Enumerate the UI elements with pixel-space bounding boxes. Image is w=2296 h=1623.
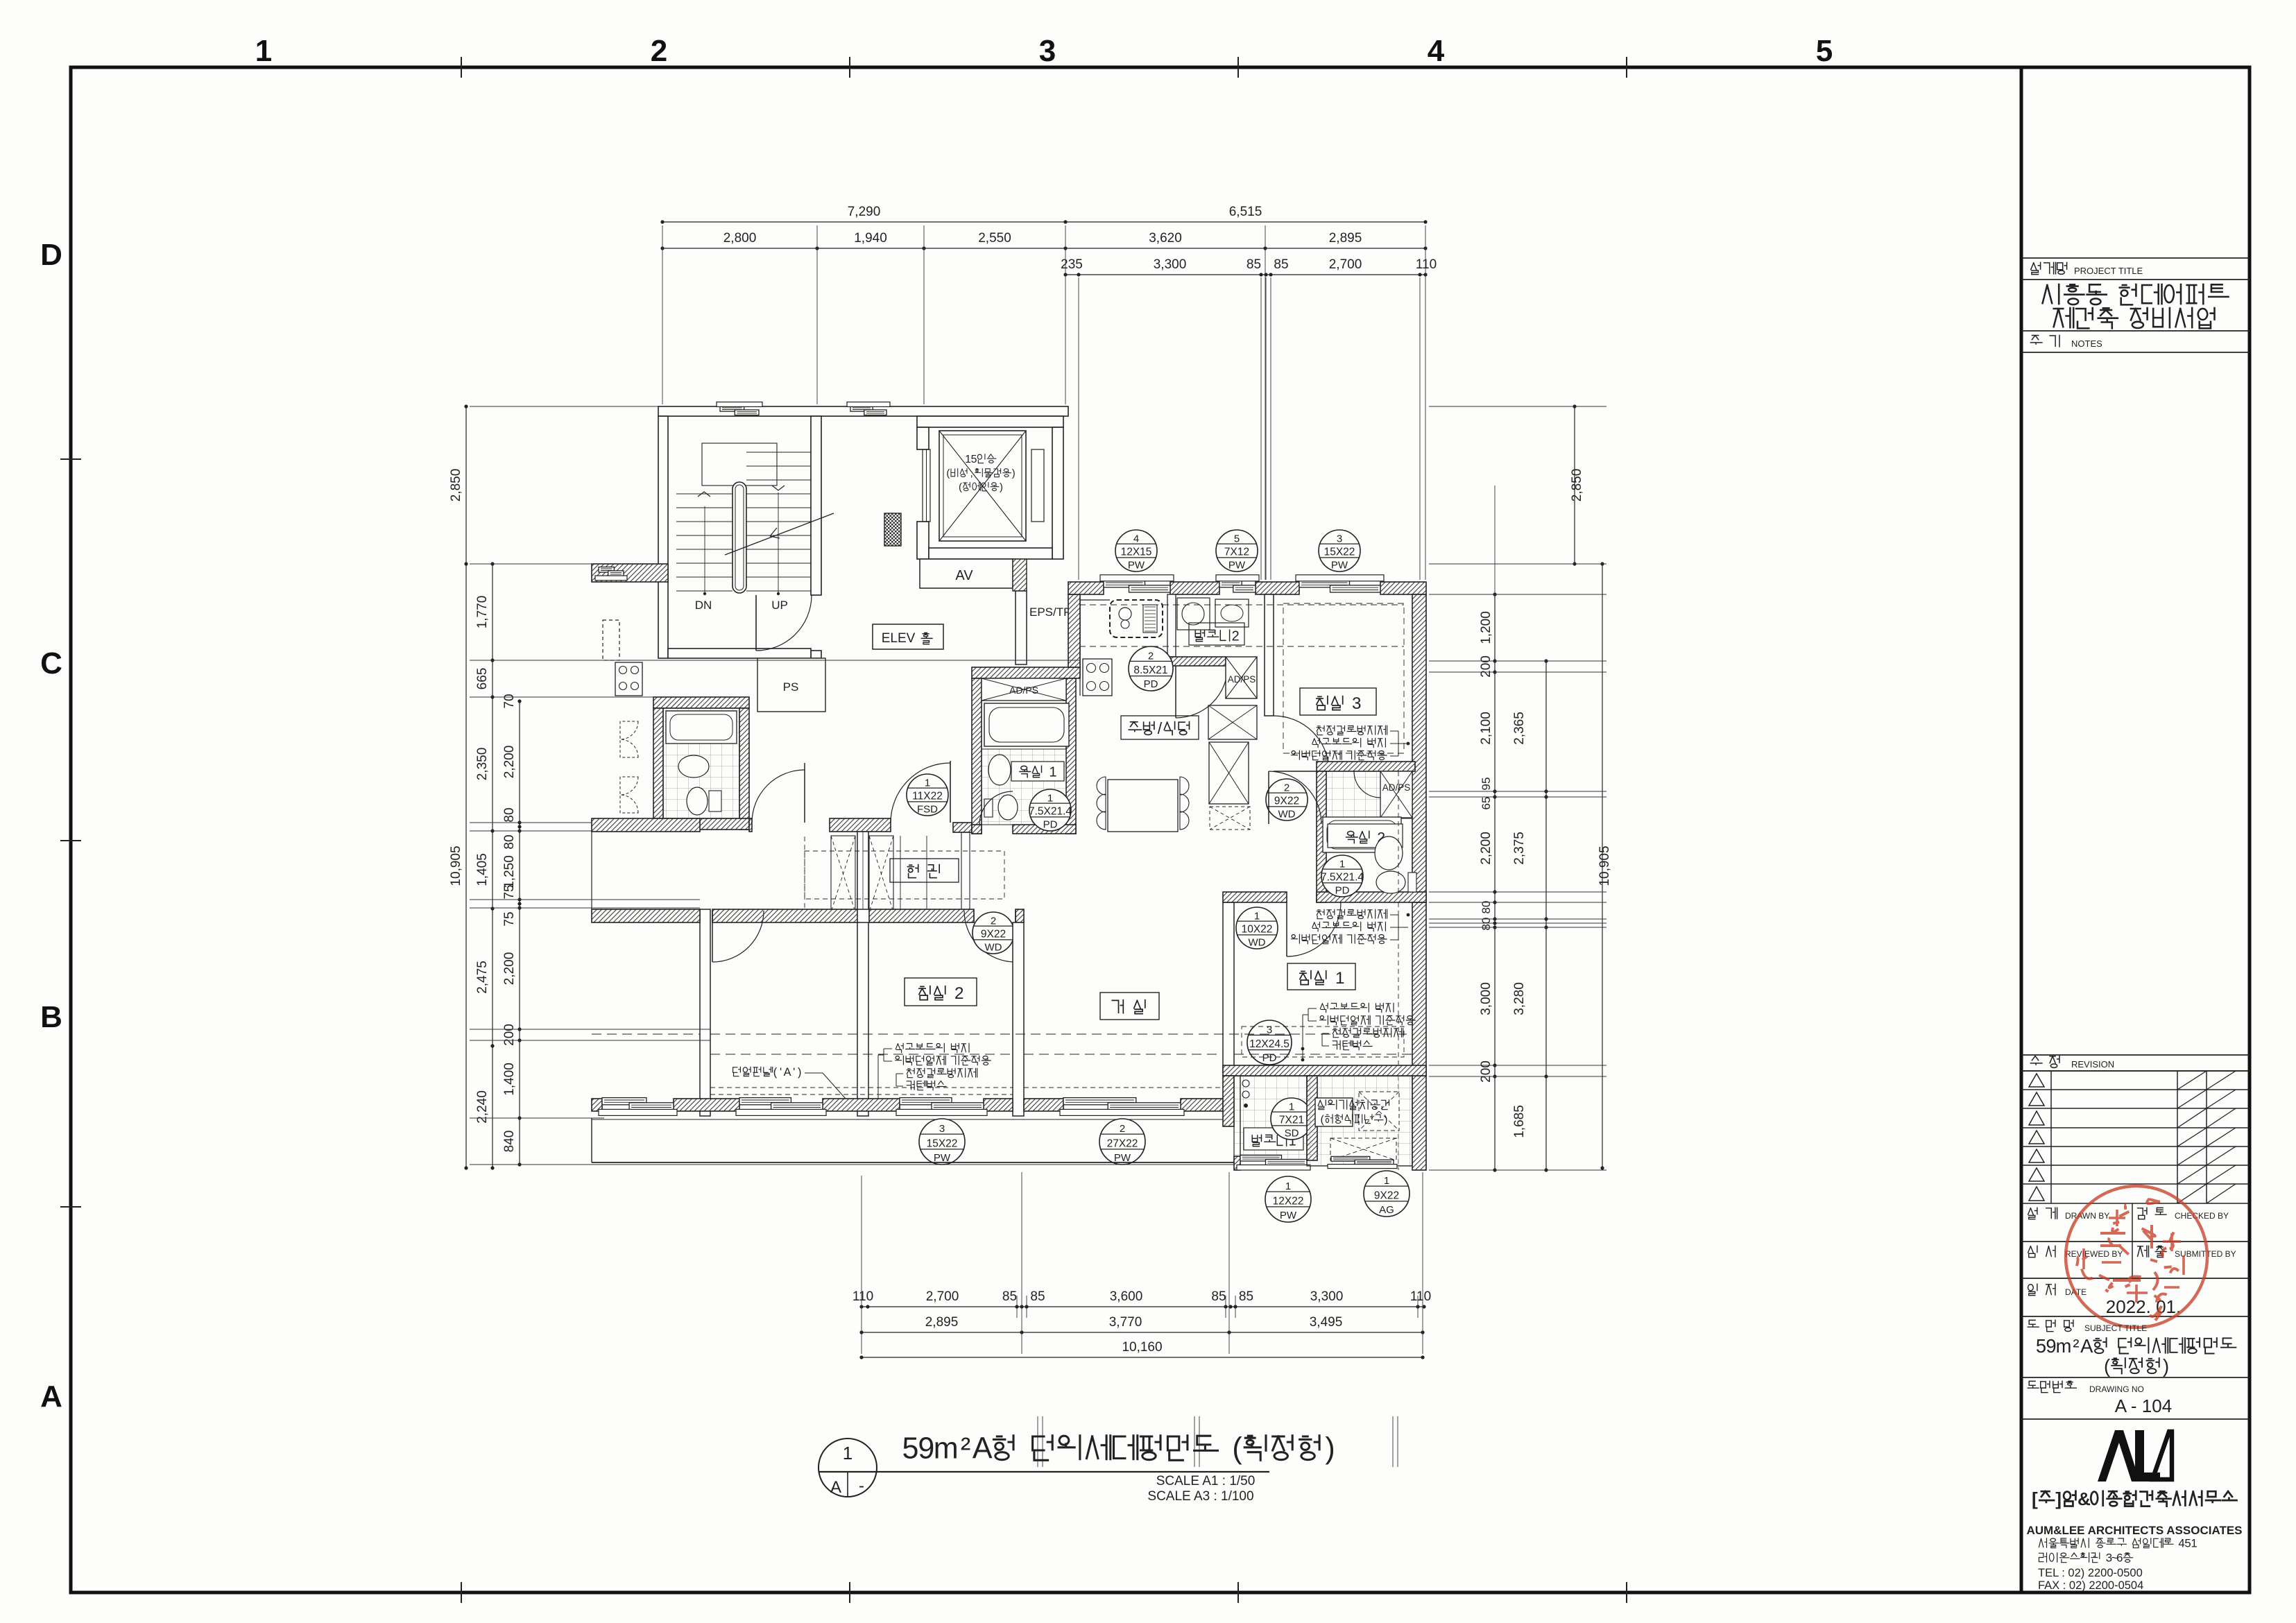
svg-text:': ' (780, 1066, 782, 1079)
svg-text:5: 5 (971, 454, 977, 465)
svg-text:1,770: 1,770 (475, 596, 490, 629)
svg-text:2,365: 2,365 (1512, 712, 1527, 745)
svg-text:PW: PW (1228, 560, 1246, 572)
svg-text:PW: PW (1331, 560, 1348, 572)
svg-text:1,405: 1,405 (475, 853, 490, 886)
svg-text:2: 2 (954, 984, 963, 1003)
svg-text:80: 80 (502, 834, 517, 849)
svg-text:2,200: 2,200 (502, 952, 517, 986)
svg-text:-: - (859, 1477, 864, 1495)
svg-text:15X22: 15X22 (927, 1137, 958, 1149)
svg-text:1: 1 (2191, 1537, 2197, 1550)
svg-text:2: 2 (651, 34, 667, 68)
svg-text:200: 200 (502, 1024, 517, 1046)
svg-text:&: & (2077, 1488, 2091, 1509)
svg-text:7,290: 7,290 (848, 205, 881, 219)
svg-text:PW: PW (1280, 1210, 1297, 1221)
svg-text:2,895: 2,895 (925, 1315, 959, 1330)
svg-text:(: ( (1232, 1432, 1242, 1466)
svg-text:AUM&LEE ARCHITECTS ASSOCIATES: AUM&LEE ARCHITECTS ASSOCIATES (2026, 1524, 2242, 1537)
svg-text:SCALE A3 : 1/100: SCALE A3 : 1/100 (1147, 1489, 1253, 1504)
svg-text:PD: PD (1335, 885, 1350, 897)
svg-text:3,600: 3,600 (1110, 1289, 1143, 1304)
svg-text:2,700: 2,700 (1329, 257, 1362, 272)
svg-text:2,800: 2,800 (723, 231, 757, 246)
svg-text:5: 5 (902, 1432, 919, 1466)
svg-text:840: 840 (502, 1131, 517, 1153)
svg-text:): ) (1012, 468, 1016, 479)
svg-text:NOTES: NOTES (2071, 338, 2102, 349)
svg-text:2,550: 2,550 (978, 231, 1011, 246)
svg-text:110: 110 (853, 1289, 873, 1304)
svg-text:2,200: 2,200 (502, 746, 517, 779)
svg-text:85: 85 (1246, 257, 1261, 272)
svg-text:(: ( (1320, 1114, 1324, 1126)
svg-text:110: 110 (1410, 1289, 1431, 1304)
svg-text:[: [ (2032, 1488, 2038, 1509)
svg-text:10,905: 10,905 (1597, 845, 1612, 886)
svg-text:SD: SD (1285, 1128, 1299, 1140)
svg-text:): ) (1000, 482, 1003, 493)
svg-text:2,700: 2,700 (926, 1289, 959, 1304)
svg-text:A: A (2080, 1335, 2093, 1357)
svg-text:1: 1 (1289, 1101, 1294, 1113)
svg-text:1: 1 (1384, 1175, 1389, 1187)
svg-text:235: 235 (1061, 257, 1083, 272)
svg-text:1: 1 (255, 34, 272, 68)
svg-text:7.5X21.4: 7.5X21.4 (1321, 872, 1364, 884)
svg-text:ELEV: ELEV (882, 631, 916, 646)
svg-text:2,240: 2,240 (475, 1090, 490, 1124)
svg-text:3: 3 (1039, 34, 1056, 68)
svg-text:SCALE A1 : 1/50: SCALE A1 : 1/50 (1156, 1474, 1256, 1488)
svg-text:FSD: FSD (917, 804, 938, 816)
svg-text:PS: PS (783, 680, 799, 694)
svg-text:): ) (1325, 1432, 1335, 1466)
svg-text:PROJECT TITLE: PROJECT TITLE (2074, 266, 2143, 276)
svg-text:]: ] (2055, 1488, 2062, 1509)
svg-text:7X12: 7X12 (1224, 547, 1249, 558)
svg-text:2: 2 (1284, 782, 1290, 793)
svg-text:10X22: 10X22 (1242, 924, 1273, 936)
svg-text:85: 85 (1274, 257, 1288, 272)
svg-text:UP: UP (771, 599, 788, 612)
svg-text:9: 9 (2046, 1335, 2056, 1357)
svg-text:2: 2 (1232, 629, 1240, 644)
svg-text:3: 3 (1352, 694, 1361, 713)
svg-text:665: 665 (475, 668, 490, 690)
svg-text:3,300: 3,300 (1310, 1289, 1344, 1304)
svg-text:1: 1 (1047, 792, 1053, 804)
svg-text:12X22: 12X22 (1273, 1195, 1304, 1207)
svg-text:AV: AV (955, 568, 973, 583)
svg-text:REVIEWED BY: REVIEWED BY (2065, 1249, 2123, 1259)
svg-text:²: ² (961, 1432, 970, 1466)
svg-text:2022. 01.: 2022. 01. (2106, 1296, 2181, 1317)
svg-text:WD: WD (985, 942, 1002, 954)
svg-text:): ) (2163, 1355, 2169, 1377)
svg-text:3,770: 3,770 (1109, 1315, 1142, 1330)
svg-text:200: 200 (1479, 655, 1493, 678)
svg-text:CHECKED BY: CHECKED BY (2175, 1211, 2229, 1221)
svg-text:4: 4 (1133, 533, 1139, 544)
svg-text:1,200: 1,200 (1479, 611, 1493, 644)
svg-text:3,000: 3,000 (1479, 982, 1493, 1015)
svg-text:2: 2 (1148, 651, 1154, 662)
svg-text:2,850: 2,850 (1570, 469, 1584, 502)
svg-text:): ) (1384, 1114, 1387, 1126)
svg-text:80: 80 (502, 807, 517, 822)
svg-text:AD/PS: AD/PS (1009, 685, 1038, 696)
svg-text:1: 1 (925, 777, 930, 789)
svg-text:WD: WD (1278, 809, 1296, 821)
svg-text:m: m (2056, 1335, 2072, 1357)
svg-text:85: 85 (1239, 1289, 1253, 1304)
svg-text:85: 85 (1030, 1289, 1045, 1304)
svg-text:75: 75 (502, 884, 517, 899)
svg-text:A: A (830, 1478, 841, 1497)
svg-text:2: 2 (1120, 1123, 1125, 1135)
svg-text:15X22: 15X22 (1324, 547, 1355, 558)
svg-text:': ' (793, 1066, 795, 1079)
svg-text:A: A (40, 1380, 62, 1414)
svg-text:DN: DN (695, 599, 712, 612)
svg-text:2: 2 (991, 915, 996, 927)
svg-text:1,940: 1,940 (854, 231, 887, 246)
svg-text:): ) (798, 1066, 801, 1079)
svg-text:9: 9 (918, 1432, 934, 1466)
svg-text:REVISION: REVISION (2071, 1059, 2114, 1070)
svg-text:(: ( (959, 482, 962, 493)
svg-text:B: B (40, 1000, 62, 1034)
svg-text:/: / (1158, 719, 1163, 737)
svg-text:27X22: 27X22 (1107, 1137, 1138, 1149)
svg-text:5: 5 (2036, 1335, 2046, 1357)
svg-text:2,475: 2,475 (475, 961, 490, 994)
svg-text:1: 1 (843, 1443, 853, 1463)
svg-text:9X22: 9X22 (1374, 1190, 1399, 1201)
svg-text:6,515: 6,515 (1229, 205, 1262, 219)
svg-text:12X24.5: 12X24.5 (1249, 1038, 1290, 1050)
svg-text:110: 110 (1416, 257, 1437, 272)
svg-text:A: A (973, 1432, 993, 1466)
svg-text:2,895: 2,895 (1329, 231, 1362, 246)
svg-text:6: 6 (2116, 1552, 2123, 1565)
svg-text:7.5X21.4: 7.5X21.4 (1029, 806, 1072, 818)
svg-text:5: 5 (2184, 1537, 2191, 1550)
svg-text:PD: PD (1043, 819, 1058, 831)
svg-text:PW: PW (1128, 560, 1145, 572)
svg-text:1,250: 1,250 (502, 855, 517, 888)
svg-text:TEL : 02) 2200-0500: TEL : 02) 2200-0500 (2038, 1567, 2143, 1579)
svg-text:1: 1 (1335, 969, 1344, 988)
svg-text:9X22: 9X22 (1274, 796, 1299, 807)
svg-text:FAX : 02) 2200-0504: FAX : 02) 2200-0504 (2038, 1579, 2143, 1592)
svg-text:3,495: 3,495 (1310, 1315, 1343, 1330)
svg-text:SUBJECT TITLE: SUBJECT TITLE (2084, 1323, 2147, 1333)
svg-text:1,685: 1,685 (1512, 1105, 1527, 1138)
svg-text:5: 5 (1234, 533, 1240, 544)
svg-text:3,280: 3,280 (1512, 982, 1527, 1015)
svg-text:²: ² (2073, 1335, 2079, 1357)
svg-text:2,375: 2,375 (1512, 832, 1527, 865)
svg-text:(: ( (2104, 1355, 2110, 1377)
svg-text:PD: PD (1144, 678, 1158, 690)
svg-text:DRAWING NO: DRAWING NO (2089, 1384, 2144, 1394)
svg-text:WD: WD (1249, 937, 1266, 949)
svg-text:7X21: 7X21 (1279, 1115, 1304, 1126)
svg-text:95: 95 (1480, 778, 1493, 791)
svg-text:4: 4 (1428, 34, 1445, 68)
svg-text:(: ( (773, 1066, 778, 1079)
svg-text:2,850: 2,850 (449, 469, 463, 502)
svg-text:DRAWN BY: DRAWN BY (2065, 1211, 2109, 1221)
svg-text:(: ( (946, 468, 950, 479)
svg-text:3,620: 3,620 (1149, 231, 1182, 246)
svg-text:11X22: 11X22 (912, 791, 943, 802)
svg-text:m: m (934, 1432, 959, 1466)
svg-text:C: C (40, 646, 62, 680)
svg-text:85: 85 (1002, 1289, 1017, 1304)
svg-text:2,200: 2,200 (1479, 832, 1493, 865)
svg-text:AG: AG (1379, 1204, 1394, 1216)
svg-text:85: 85 (1211, 1289, 1226, 1304)
svg-text:2,350: 2,350 (475, 748, 490, 781)
svg-text:,: , (970, 468, 973, 479)
svg-text:1: 1 (1339, 858, 1345, 870)
svg-text:D: D (40, 238, 62, 272)
svg-text:1,400: 1,400 (502, 1063, 517, 1096)
svg-text:1: 1 (1285, 1180, 1291, 1192)
svg-text:5: 5 (1816, 34, 1833, 68)
svg-text:70: 70 (502, 694, 517, 708)
svg-text:3: 3 (939, 1123, 945, 1135)
svg-text:1: 1 (1254, 910, 1260, 922)
svg-text:2,100: 2,100 (1479, 712, 1493, 745)
svg-text:AD/PS: AD/PS (1228, 674, 1256, 685)
svg-text:65: 65 (1480, 797, 1493, 810)
svg-text:75: 75 (502, 911, 517, 926)
svg-text:3: 3 (1337, 533, 1342, 544)
svg-text:12X15: 12X15 (1121, 547, 1152, 558)
svg-text:4: 4 (2178, 1537, 2184, 1550)
svg-text:10,160: 10,160 (1122, 1340, 1162, 1355)
svg-text:A: A (784, 1066, 791, 1079)
svg-text:AD/PS: AD/PS (1382, 782, 1411, 793)
svg-text:8.5X21: 8.5X21 (1133, 664, 1167, 676)
svg-text:1: 1 (1049, 765, 1056, 780)
svg-text:9X22: 9X22 (981, 929, 1006, 941)
svg-text:200: 200 (1479, 1060, 1493, 1083)
svg-text:10,905: 10,905 (449, 845, 463, 886)
svg-text:A - 104: A - 104 (2115, 1396, 2172, 1416)
svg-text:3,300: 3,300 (1154, 257, 1187, 272)
